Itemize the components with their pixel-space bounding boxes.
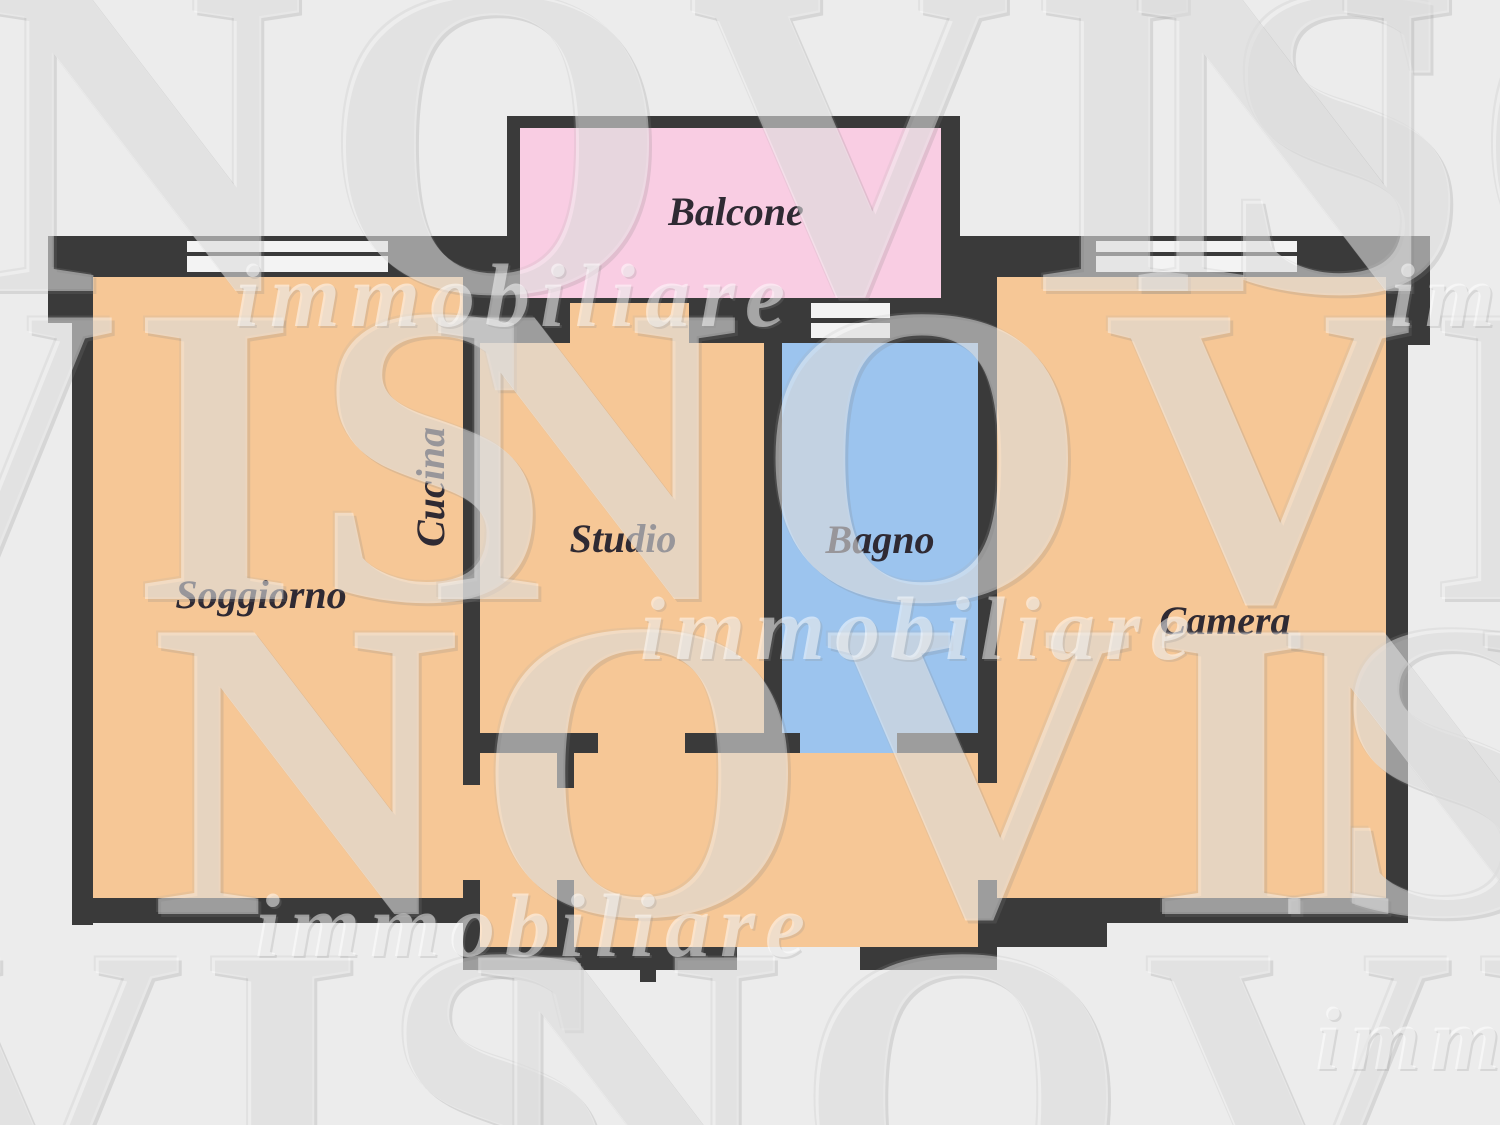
room-label-bagno: Bagno: [826, 520, 935, 560]
room-label-cucina: Cucina: [411, 427, 451, 547]
window-divider: [187, 252, 388, 256]
room-camera: [997, 277, 1386, 898]
wall-right: [1386, 236, 1408, 923]
room-label-soggiorno: Soggiorno: [175, 575, 346, 615]
wall-corridor-bottom-right: [860, 947, 997, 970]
doorway-studio: [598, 733, 685, 753]
window-divider: [1096, 252, 1297, 256]
entrance-step: [640, 970, 656, 982]
room-corridor: [480, 753, 978, 947]
room-label-balcone: Balcone: [668, 192, 804, 232]
window-divider: [811, 318, 890, 323]
doorway-camera: [978, 783, 997, 880]
wall-bagno-left: [764, 343, 782, 753]
wall-corridor-bottom-left: [463, 947, 737, 970]
wall-interior-c: [897, 733, 997, 753]
soggiorno-window: [187, 241, 388, 272]
wall-stub-corridor-top: [557, 733, 574, 788]
wall-left: [72, 236, 93, 925]
wall-soggiorno-bottom: [72, 898, 480, 923]
room-label-studio: Studio: [570, 519, 677, 559]
room-label-camera: Camera: [1159, 601, 1290, 641]
wall-bagno-right: [978, 343, 997, 783]
doorway-studio-balcone: [570, 303, 689, 343]
wall-divider-cucina-studio: [463, 277, 480, 785]
bagno-window: [811, 303, 890, 338]
camera-window: [1096, 241, 1297, 272]
floorplan-canvas: Balcone Soggiorno Cucina Studio Bagno Ca…: [0, 0, 1500, 1125]
wall-corner-step: [997, 898, 1107, 947]
doorway-soggiorno: [463, 785, 480, 880]
watermark-tagline-text: immobiliare: [1315, 995, 1500, 1085]
wall-interior-b: [685, 733, 800, 753]
wall-interior-a: [463, 733, 598, 753]
wall-stub-corridor-bottom: [557, 880, 574, 970]
doorway-bagno: [800, 733, 897, 753]
